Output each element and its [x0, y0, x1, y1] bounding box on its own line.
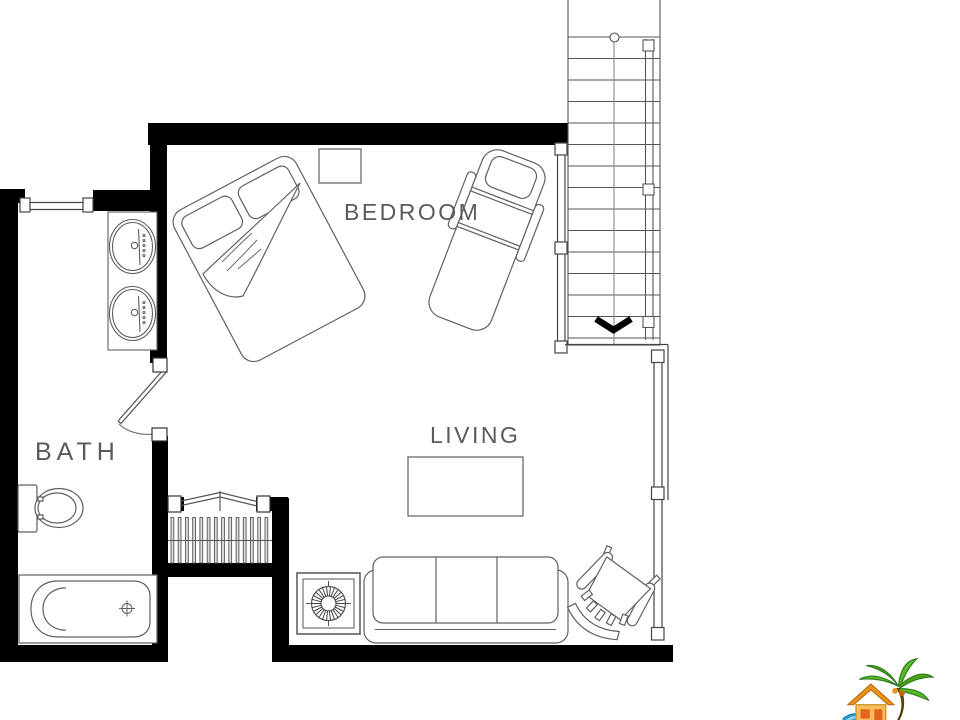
stair-gate-handrail	[172, 491, 263, 511]
stove	[297, 573, 360, 634]
coffee-table	[408, 457, 523, 516]
bedroom-stair-railing	[555, 143, 567, 353]
sink	[110, 287, 156, 341]
bathroom-window	[20, 198, 93, 212]
floor-plan: BEDROOM LIVING BATH	[0, 0, 960, 720]
agency-logo	[841, 659, 933, 720]
bathroom-door	[118, 358, 167, 441]
nightstand	[319, 149, 361, 183]
living-label: LIVING	[430, 422, 520, 449]
bathtub	[19, 575, 157, 643]
chaise-lounge	[416, 142, 558, 338]
palm-fronds	[859, 659, 933, 700]
sofa	[364, 557, 568, 643]
sink	[110, 220, 156, 274]
upper-staircase	[568, 0, 660, 345]
toilet	[18, 485, 83, 532]
bath-label: BATH	[35, 438, 120, 467]
armchair	[557, 539, 667, 652]
bedroom-label: BEDROOM	[344, 199, 480, 226]
vanity-two-sinks	[108, 212, 157, 350]
floor-plan-drawing	[0, 0, 960, 720]
door-swing-arc	[119, 424, 157, 434]
double-bed	[168, 152, 370, 367]
house-roof	[848, 684, 894, 705]
